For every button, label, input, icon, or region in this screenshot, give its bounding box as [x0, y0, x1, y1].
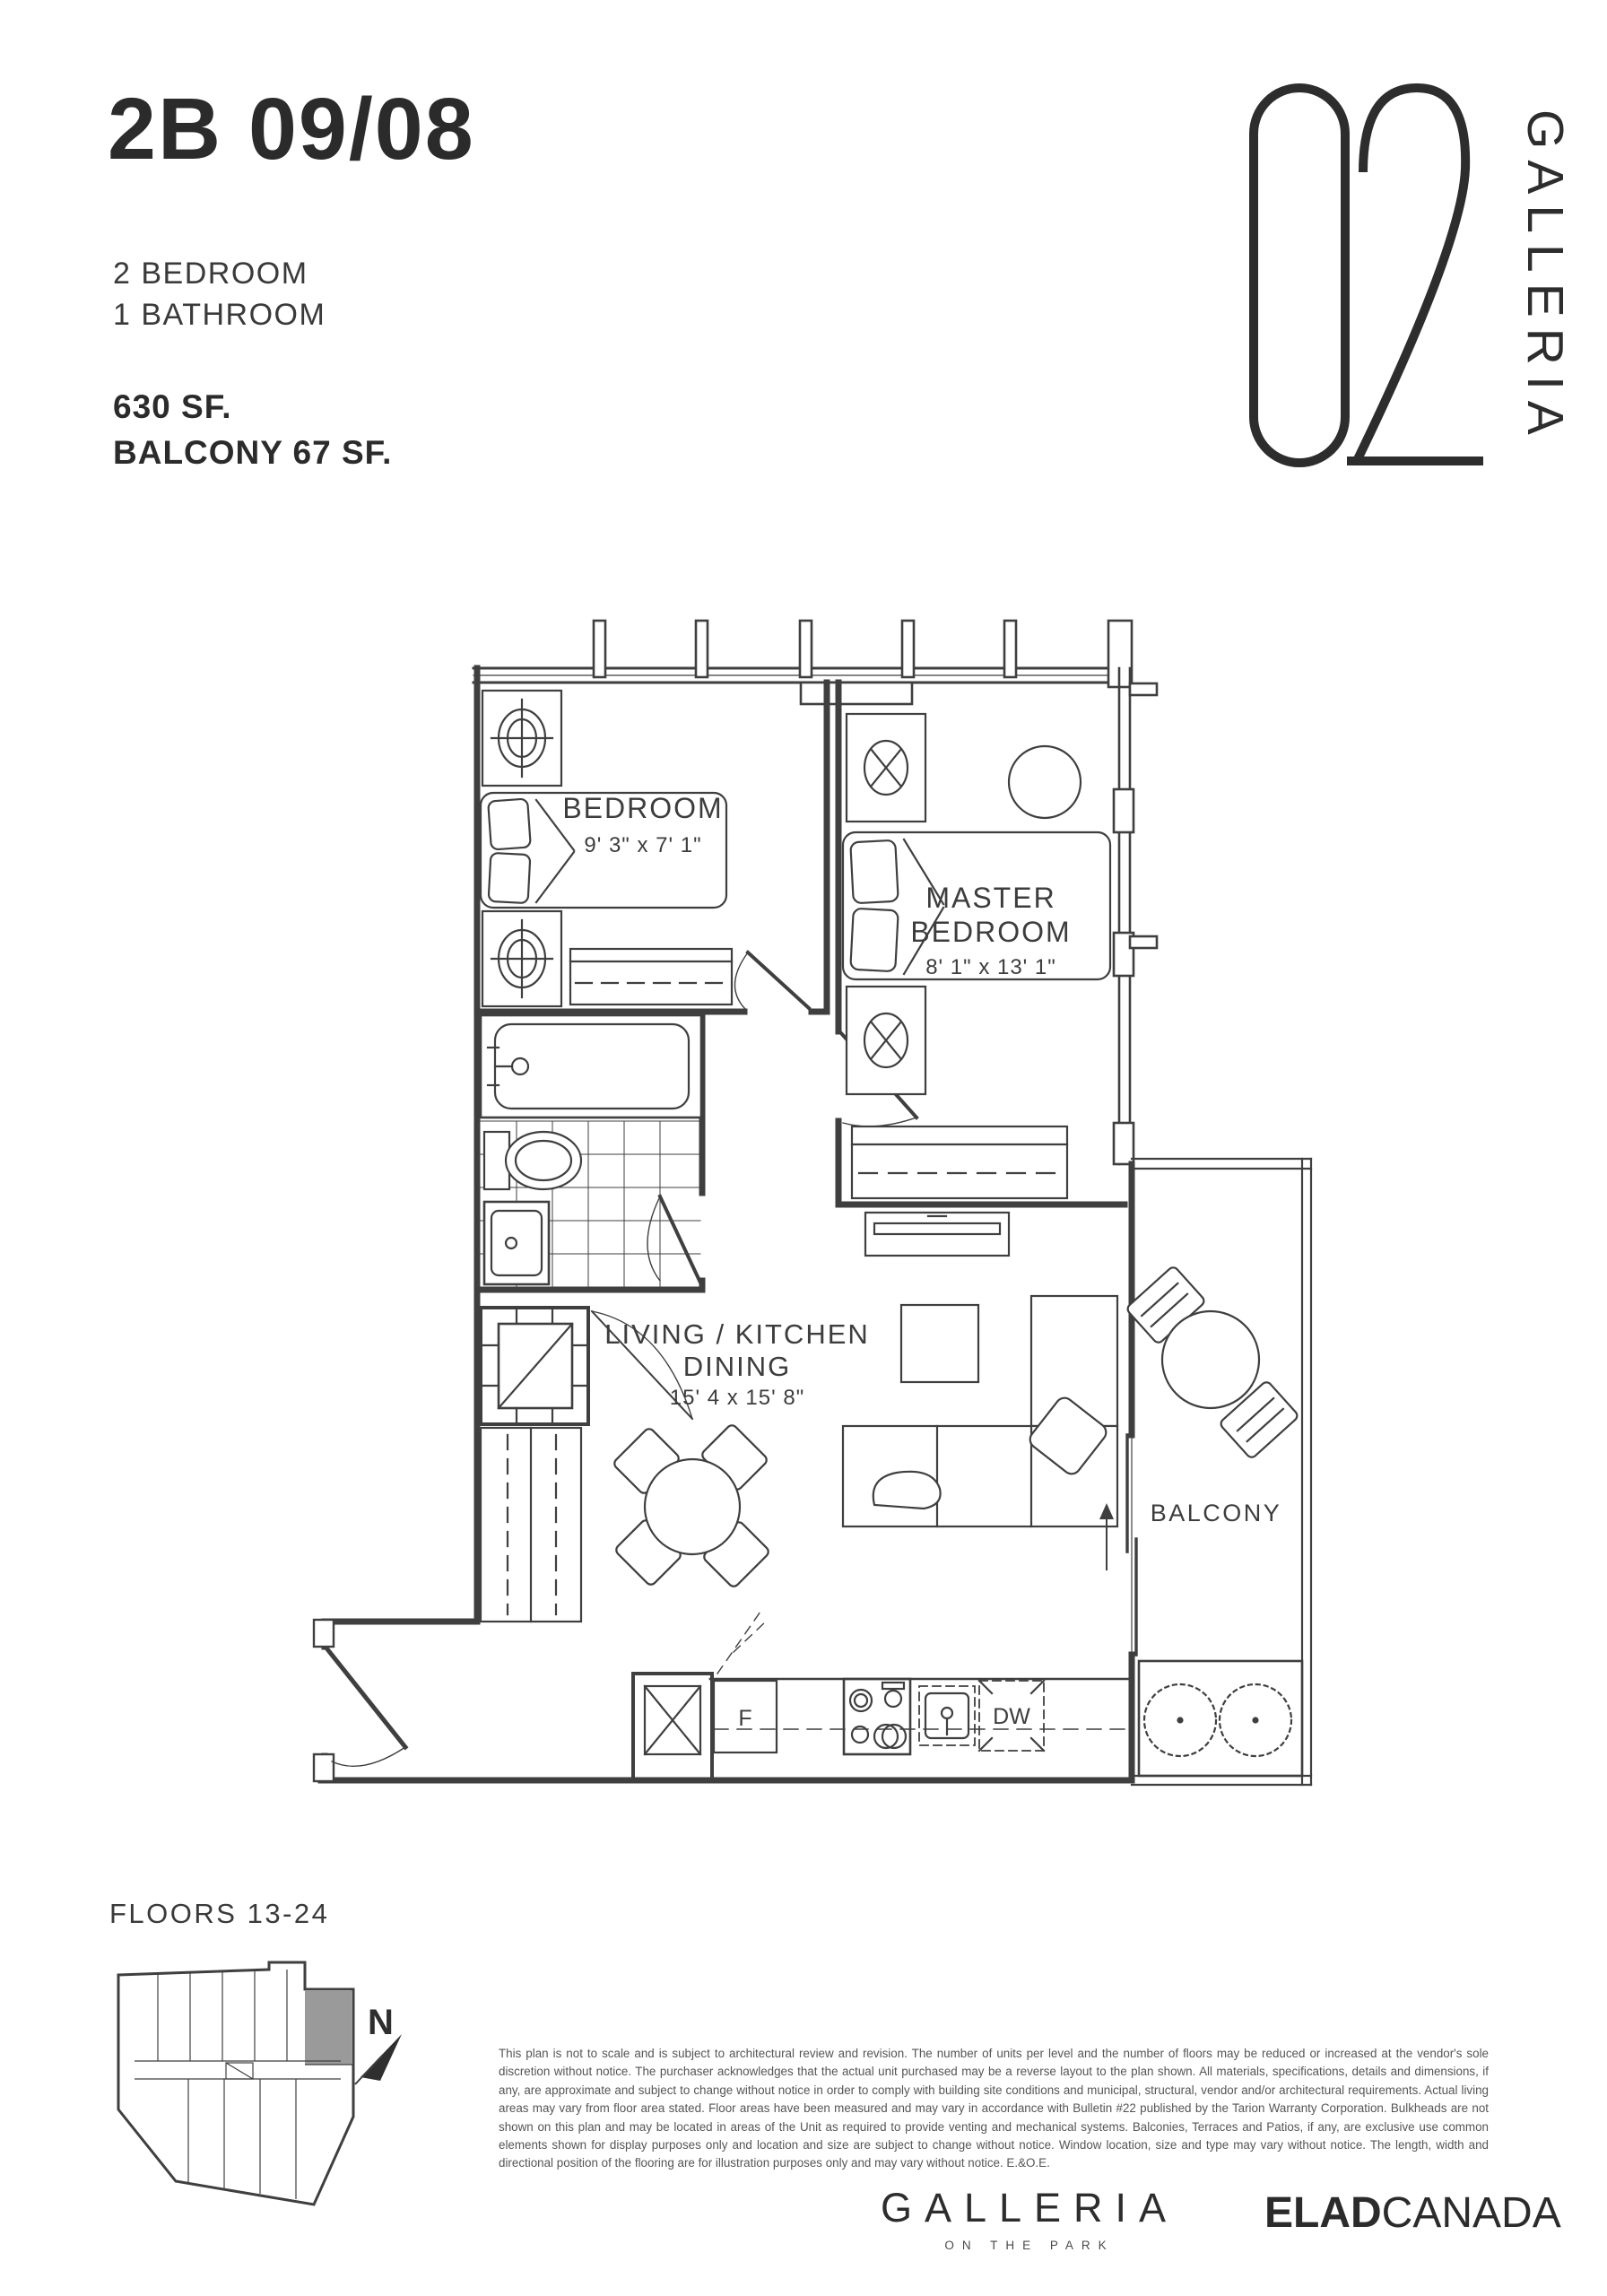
- logo-vertical-name: GALLERIA: [1516, 109, 1574, 446]
- legal-disclaimer: This plan is not to scale and is subject…: [499, 2045, 1489, 2173]
- right-window-wall: [1114, 668, 1157, 1164]
- dishwasher-label: DW: [993, 1704, 1030, 1729]
- north-label: N: [368, 2003, 394, 2042]
- developer-logo-bold: ELAD: [1264, 2189, 1382, 2237]
- dining-table: [612, 1423, 770, 1588]
- sofa: [843, 1296, 1117, 1526]
- vanity-sink: [484, 1202, 549, 1284]
- kitchen-sink: [919, 1686, 975, 1745]
- developer-logo-light: CANADA: [1382, 2189, 1561, 2237]
- planter: [1139, 1661, 1302, 1776]
- key-plan: N: [118, 1962, 402, 2205]
- master-dims: 8' 1" x 13' 1": [925, 955, 1056, 979]
- logo-digit-zero: [1254, 88, 1345, 463]
- toilet: [484, 1132, 581, 1189]
- side-table: [1009, 746, 1081, 818]
- balcony-label: BALCONY: [1151, 1500, 1282, 1526]
- keyplan-highlight-unit: [305, 1991, 352, 2065]
- bedroom-door: [734, 952, 809, 1010]
- living-label-line1: LIVING / KITCHEN: [604, 1318, 870, 1350]
- master-label-line2: BEDROOM: [910, 916, 1071, 948]
- entry-door: [314, 1620, 405, 1781]
- kitchen: [633, 1609, 1132, 1780]
- sliding-door: [1127, 1435, 1136, 1655]
- room-labels: BEDROOM 9' 3" x 7' 1" MASTER BEDROOM 8' …: [562, 792, 1281, 1731]
- shaft-column: [633, 1674, 712, 1780]
- project-logo: GALLERIA ON THE PARK: [863, 2185, 1196, 2252]
- hall-closet: [481, 1428, 581, 1622]
- floorplan-sheet: 2B 09/08 2 BEDROOM 1 BATHROOM 630 SF. BA…: [0, 0, 1607, 2296]
- bathroom: [479, 1015, 701, 1288]
- bathtub: [481, 1015, 701, 1118]
- top-window-wall: [473, 621, 1132, 704]
- bedroom-label: BEDROOM: [562, 792, 723, 824]
- brand-logo: GALLERIA: [1254, 88, 1574, 463]
- dresser: [852, 1126, 1067, 1198]
- living-dims: 15' 4 x 15' 8": [670, 1386, 804, 1410]
- living-label-line2: DINING: [683, 1351, 792, 1382]
- master-label-line1: MASTER: [925, 882, 1055, 914]
- north-arrow-icon: N: [355, 2003, 402, 2084]
- unit-plan: BEDROOM 9' 3" x 7' 1" MASTER BEDROOM 8' …: [314, 621, 1311, 1785]
- tv-console: [865, 1213, 1009, 1256]
- project-logo-tagline: ON THE PARK: [863, 2239, 1196, 2252]
- bedroom-closet: [570, 949, 732, 1004]
- fridge-label: F: [738, 1706, 751, 1731]
- developer-logo: ELADCANADA: [1264, 2188, 1561, 2238]
- floor-plan-drawing: GALLERIA: [0, 0, 1607, 2296]
- balcony-table-set: [1125, 1265, 1299, 1459]
- logo-digit-two: [1347, 88, 1483, 461]
- coffee-table: [901, 1305, 978, 1382]
- bedroom-dims: 9' 3" x 7' 1": [584, 833, 701, 857]
- project-logo-name: GALLERIA: [863, 2185, 1196, 2231]
- floors-range-label: FLOORS 13-24: [109, 1898, 329, 1930]
- bathroom-door: [647, 1196, 700, 1283]
- cooktop: [844, 1679, 910, 1754]
